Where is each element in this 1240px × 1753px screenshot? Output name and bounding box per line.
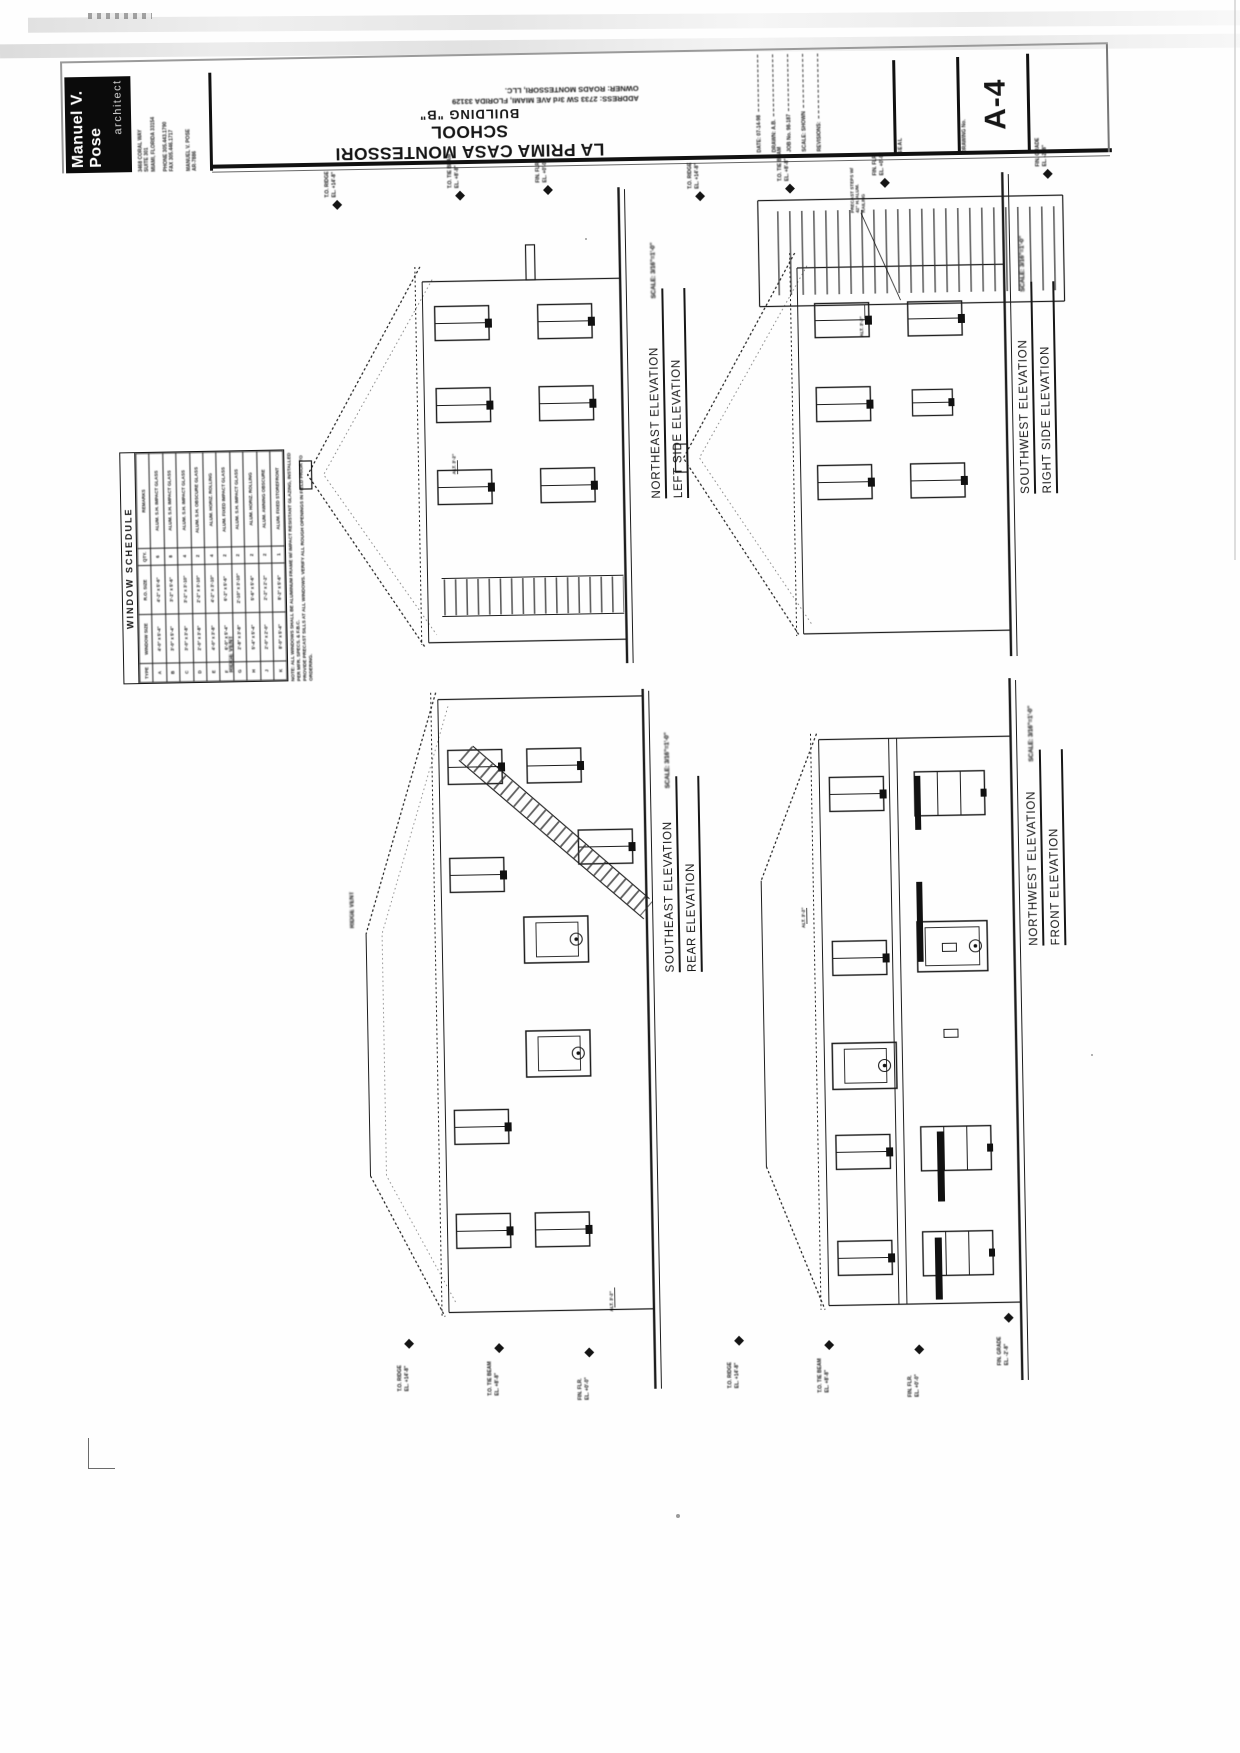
marker-elevation: EL. -2'-8" bbox=[1003, 1325, 1010, 1365]
scale-note: SCALE: 3/16"=1'-0" bbox=[663, 732, 680, 788]
schedule-cell: 5'-4" x 5'-4" bbox=[246, 612, 260, 661]
marker-elevation: EL. +8'-8" bbox=[493, 1356, 500, 1396]
northwest-elevation-title: NORTHWEST ELEVATION FRONT ELEVATION bbox=[1025, 749, 1081, 946]
schedule-cell: B bbox=[166, 663, 180, 682]
marker-elevation: EL. +14'-8" bbox=[330, 157, 337, 197]
schedule-cell: 2 bbox=[218, 547, 232, 564]
schedule-cell: 8'-2" x 5'-6" bbox=[272, 563, 286, 612]
southeast-scale-note: SCALE: 3/16"=1'-0" bbox=[663, 732, 680, 788]
marker-label: T.O. TIE BEAM bbox=[487, 1356, 494, 1396]
elevation-title: NORTHEAST ELEVATION bbox=[647, 288, 667, 498]
stair-note-line: 42" H. ALUM. RAILING bbox=[855, 167, 867, 213]
schedule-cell: 2'-0" x 3'-8" bbox=[192, 613, 206, 662]
elevation-subtitle: REAR ELEVATION bbox=[683, 776, 703, 972]
northwest-elevation-drawing bbox=[758, 678, 1029, 1385]
elevation-subtitle: FRONT ELEVATION bbox=[1047, 749, 1067, 945]
dim-note: ALT. 3'-2" bbox=[609, 1283, 621, 1311]
schedule-header: QTY. bbox=[137, 548, 151, 565]
marker-elevation: EL. +0'-0" bbox=[914, 1357, 921, 1397]
marker-elevation: EL. +8'-8" bbox=[453, 148, 460, 188]
schedule-cell: 1 bbox=[271, 546, 285, 563]
schedule-cell: 4'-2" x 5'-6" bbox=[151, 565, 165, 614]
schedule-cell: H bbox=[247, 661, 261, 680]
schedule-cell: 6'-0" x 5'-4" bbox=[219, 613, 233, 662]
northwest-dim-note: ALT. 3'-2" bbox=[801, 900, 813, 928]
southwest-dim-note: ALT. 3'-2" bbox=[859, 309, 871, 337]
southwest-scale-note: SCALE: 3/16"=1'-0" bbox=[1018, 236, 1035, 292]
southwest-stair-note: PRECAST STEPS W/ 42" H. ALUM. RAILING bbox=[849, 167, 866, 213]
schedule-cell: 2 bbox=[245, 546, 259, 563]
schedule-cell: 5'-6" x 5'-6" bbox=[245, 563, 259, 612]
dim-note: ALT. 3'-2" bbox=[451, 446, 463, 474]
schedule-header: TYPE bbox=[140, 663, 154, 682]
schedule-cell: 2'-2" x 2'-2" bbox=[258, 563, 272, 612]
marker-elevation: EL. +14'-8" bbox=[733, 1348, 740, 1388]
schedule-cell: 6 bbox=[151, 548, 165, 565]
schedule-cell: 2'-10" x 3'-10" bbox=[232, 564, 246, 613]
southeast-elevation-title: SOUTHEAST ELEVATION REAR ELEVATION bbox=[661, 776, 717, 973]
southeast-dim-note: ALT. 3'-2" bbox=[609, 1283, 621, 1311]
southwest-elevation-drawing bbox=[670, 171, 1071, 662]
scale-note: SCALE: 3/16"=1'-0" bbox=[1027, 706, 1044, 762]
schedule-cell: 6'-2" x 5'-6" bbox=[218, 564, 232, 613]
marker-elevation: EL. +0'-0" bbox=[541, 143, 548, 183]
schedule-header: R.O. SIZE bbox=[138, 565, 152, 614]
marker-elevation: EL. +8'-8" bbox=[783, 141, 790, 181]
marker-elevation: EL. +14'-8" bbox=[403, 1351, 410, 1391]
marker-elevation: EL. +14'-8" bbox=[693, 149, 700, 189]
northeast-dim-note: ALT. 3'-2" bbox=[451, 446, 463, 474]
schedule-cell: 3'-2" x 5'-6" bbox=[165, 565, 179, 614]
marker-label: T.O. TIE BEAM bbox=[817, 1353, 824, 1393]
window-schedule: WINDOW SCHEDULE TYPE WINDOW SIZE R.O. SI… bbox=[119, 449, 311, 684]
dim-note: ALT. 3'-2" bbox=[859, 309, 871, 337]
northeast-scale-note: SCALE: 3/16"=1'-0" bbox=[649, 242, 666, 298]
scale-note: SCALE: 3/16"=1'-0" bbox=[1018, 236, 1035, 292]
schedule-cell: 3'-0" x 3'-8" bbox=[179, 614, 193, 663]
schedule-row: K8'-0" x 5'-4"8'-2" x 5'-6"1ALUM. FIXED … bbox=[270, 451, 288, 680]
schedule-cell: E bbox=[207, 662, 221, 681]
northwest-scale-note: SCALE: 3/16"=1'-0" bbox=[1027, 706, 1044, 762]
northeast-elevation-title: NORTHEAST ELEVATION LEFT SIDE ELEVATION bbox=[647, 288, 703, 499]
schedule-cell: J bbox=[260, 661, 274, 680]
window-schedule-table: TYPE WINDOW SIZE R.O. SIZE QTY. REMARKS … bbox=[135, 450, 287, 683]
schedule-cell: 8'-0" x 5'-4" bbox=[273, 612, 287, 661]
schedule-cell: 2'-0" x 2'-0" bbox=[259, 612, 273, 661]
schedule-cell: ALUM. FIXED STOREFRONT bbox=[270, 451, 285, 546]
drawing-sheet: Manuel V. Pose architect 3468 CORAL WAY … bbox=[0, 0, 1240, 1753]
schedule-cell: G bbox=[233, 662, 247, 681]
schedule-cell: 2 bbox=[231, 547, 245, 564]
marker-label: T.O. TIE BEAM bbox=[447, 148, 454, 188]
scale-note: SCALE: 3/16"=1'-0" bbox=[649, 242, 666, 298]
schedule-cell: 4'-0" x 3'-8" bbox=[206, 613, 220, 662]
marker-elevation: EL. -2'-8" bbox=[1041, 126, 1048, 166]
ridge-note: RIDGE VENT bbox=[349, 890, 364, 928]
schedule-cell: D bbox=[193, 662, 207, 681]
schedule-cell: 4'-2" x 3'-10" bbox=[205, 564, 219, 613]
scanned-drawing-page: { "logo": { "name_line1": "Manuel V.", "… bbox=[0, 0, 1240, 1753]
elevation-title: NORTHWEST ELEVATION bbox=[1025, 750, 1045, 946]
southeast-ridge-note: RIDGE VENT bbox=[349, 890, 364, 928]
schedule-cell: 3'-0" x 5'-4" bbox=[165, 614, 179, 663]
schedule-cell: 3'-2" x 3'-10" bbox=[178, 565, 192, 614]
elevation-title: SOUTHEAST ELEVATION bbox=[661, 776, 681, 972]
dim-note: ALT. 3'-2" bbox=[801, 900, 813, 928]
northeast-elevation-drawing bbox=[294, 187, 633, 669]
southwest-elevation-title: SOUTHWEST ELEVATION RIGHT SIDE ELEVATION bbox=[1016, 281, 1072, 494]
schedule-cell: 4'-0" x 5'-4" bbox=[152, 614, 166, 663]
schedule-cell: 2'-8" x 3'-8" bbox=[232, 613, 246, 662]
schedule-cell: 2 bbox=[258, 546, 272, 563]
marker-label: T.O. TIE BEAM bbox=[777, 141, 784, 181]
window-schedule-notes: NOTE: ALL WINDOWS SHALL BE ALUMINUM FRAM… bbox=[287, 449, 315, 681]
elevation-title: SOUTHWEST ELEVATION bbox=[1016, 282, 1036, 494]
schedule-cell: F bbox=[220, 662, 234, 681]
schedule-cell: 4 bbox=[204, 547, 218, 564]
elevation-subtitle: RIGHT SIDE ELEVATION bbox=[1038, 281, 1058, 493]
marker-elevation: EL. +0'-0" bbox=[878, 135, 885, 175]
schedule-cell: 2'-2" x 3'-10" bbox=[191, 564, 205, 613]
schedule-cell: K bbox=[273, 661, 287, 680]
marker-elevation: EL. +0'-0" bbox=[584, 1360, 591, 1400]
schedule-cell: 4 bbox=[178, 548, 192, 565]
schedule-cell: 8 bbox=[164, 548, 178, 565]
schedule-cell: A bbox=[153, 663, 167, 682]
elevation-subtitle: LEFT SIDE ELEVATION bbox=[669, 288, 689, 498]
schedule-header: WINDOW SIZE bbox=[139, 614, 153, 663]
marker-elevation: EL. +8'-8" bbox=[823, 1353, 830, 1393]
schedule-cell: C bbox=[180, 663, 194, 682]
schedule-cell: 2 bbox=[191, 547, 205, 564]
